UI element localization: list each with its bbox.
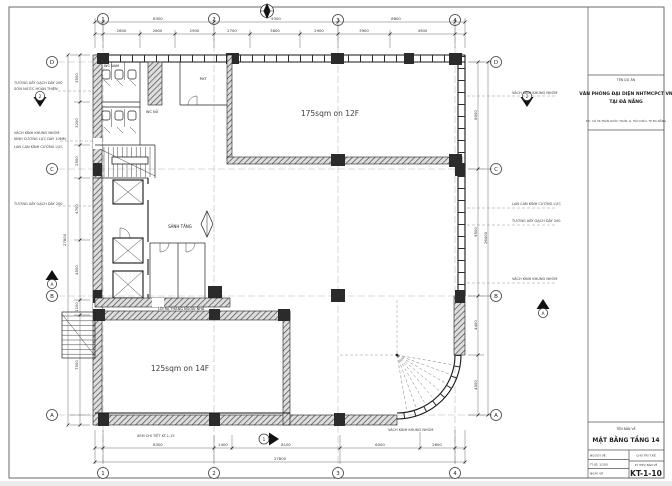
dim-text: 2900 [190, 28, 200, 33]
dim-text: 1400 [218, 442, 228, 447]
room-label-tech: P.KT [200, 77, 208, 81]
dim-text: 3500 [74, 73, 79, 83]
exterior-walls [93, 53, 465, 426]
bottom-wall [95, 415, 397, 425]
grid-bubble-A-right: A [494, 413, 498, 419]
grid-bubble-3-bottom: 3 [336, 471, 340, 477]
left-wall [93, 55, 102, 425]
drawing-number: KT-1-10 [630, 469, 662, 478]
grid-bubble-A-left: A [50, 413, 54, 419]
titleblock-row3-left: NGÀY VẼ [590, 471, 603, 476]
wc-fixtures [102, 62, 136, 133]
grid-bubble-D-left: D [50, 60, 54, 66]
project-name: VĂN PHÒNG ĐẠI DIỆN NHTMCPCT VN [579, 89, 672, 97]
dim-text: 2600 [153, 28, 163, 33]
area-label-12f: 175sqm on 12F [301, 109, 359, 118]
columns [93, 53, 465, 426]
dim-text: 4700 [74, 204, 79, 214]
note-label: TƯỜNG XÂY GẠCH DÀY 200 [13, 80, 63, 85]
dim-text: 2600 [432, 442, 442, 447]
grid-bubble-D-right: D [494, 60, 498, 66]
dim-text: 8100 [281, 442, 291, 447]
external-stair [62, 312, 95, 358]
dim-text: 4500 [473, 380, 478, 390]
dim-text: 8800 [391, 16, 401, 21]
dim-text: 9300 [271, 16, 281, 21]
dim-text: 4400 [473, 320, 478, 330]
dim-text: 26400 [483, 231, 488, 244]
grid-bubble-C-left: C [50, 167, 54, 173]
section-marker-left-top: 2 [34, 91, 47, 107]
section-marker-bottom: 1 [259, 433, 279, 446]
drawing-sheet: 1 2 3 4 1 2 3 4 D C B A D C B A 2 2 A A … [0, 0, 672, 486]
note-label: LAN CAN KÍNH CƯỜNG LỰC [512, 201, 561, 206]
lobby-level-marker [201, 211, 213, 237]
floor-plan-drawing: 1 2 3 4 1 2 3 4 D C B A D C B A 2 2 A A … [0, 0, 672, 486]
dim-text: 9500 [473, 227, 478, 237]
curved-wall-outer [397, 355, 461, 419]
stair [100, 147, 155, 177]
door-swing [120, 228, 130, 238]
right-wall-solid [454, 296, 465, 355]
grid-bubble-4-bottom: 4 [453, 471, 457, 477]
room-label-wc-nam: WC NAM [104, 64, 119, 68]
section-marker-label: 1 [263, 437, 266, 442]
note-label: VÁCH KÍNH KHUNG NHÔM [388, 427, 433, 432]
note-label: XEM CHI TIẾT KT-1-15 [137, 432, 175, 438]
note-label: KÍNH CƯỜNG LỰC DÀY 10MM [14, 136, 66, 141]
sheet-edge-shadow [0, 481, 672, 486]
section-markers: 2 2 A A 1 [34, 91, 550, 445]
dim-text: 3200 [74, 118, 79, 128]
exit-note-label: LỐI RA THANG NGOÀI NHÀ [158, 306, 205, 311]
grid-bubble-1-bottom: 1 [101, 471, 105, 477]
grid-bubble-2-bottom: 2 [212, 471, 216, 477]
titleblock-row1-right: CHỦ TRÌ T.KẾ [636, 452, 656, 458]
titleblock-row1-left: NGƯỜI VẼ [590, 453, 606, 458]
dim-text: 4900 [418, 28, 428, 33]
drawing-code-label: KÝ HIỆU BẢN VẼ [635, 462, 658, 467]
building-core [95, 62, 230, 307]
section-marker-label: 2 [39, 94, 42, 99]
grid-bubble-C-right: C [494, 167, 498, 173]
dim-text: 8000 [473, 110, 478, 120]
section-marker-label: A [51, 282, 54, 287]
dim-text: 2800 [117, 28, 127, 33]
curve-setout-fan [340, 300, 451, 409]
note-label: VÁCH KÍNH KHUNG NHÔM [512, 276, 557, 281]
grid-bubble-B-right: B [494, 294, 498, 300]
core-rooms [150, 243, 222, 300]
dim-text: 8300 [153, 16, 163, 21]
drawing-title: MẶT BẰNG TẦNG 14 [592, 435, 659, 444]
dimension-chains: 8300 9300 8800 2800 2600 2900 2700 3800 … [62, 16, 492, 464]
duct-shaft [148, 62, 162, 105]
grid-bubble-B-left: B [50, 294, 54, 300]
note-label: LAN CAN KÍNH CƯỜNG LỰC [14, 144, 63, 149]
elevator-shafts [113, 180, 143, 298]
dim-text: 3800 [270, 28, 280, 33]
area-label-14f: 125sqm on 14F [151, 364, 209, 373]
dim-text: 27800 [274, 456, 287, 461]
dim-text: 27800 [62, 233, 67, 246]
dim-text: 6000 [375, 442, 385, 447]
dim-text: 2700 [227, 28, 237, 33]
dim-text: 7500 [74, 360, 79, 370]
dim-text: 1100 [74, 302, 79, 312]
curved-wall-inner [397, 355, 455, 413]
room-label-lobby: SẢNH TẦNG [168, 224, 192, 229]
dim-text: 2900 [314, 28, 324, 33]
room-label-wc-nu: WC NỮ [146, 109, 159, 114]
section-marker-label: A [542, 311, 545, 316]
note-label: VÁCH KÍNH KHUNG NHÔM [14, 130, 59, 135]
title-block: TÊN DỰ ÁN VĂN PHÒNG ĐẠI DIỆN NHTMCPCT VN… [579, 7, 672, 478]
drawing-label: TÊN BẢN VẼ [615, 426, 635, 431]
project-name: TẠI ĐÀ NẴNG [609, 97, 643, 105]
section-marker-left-mid: A [46, 270, 59, 289]
note-label: TƯỜNG XÂY GẠCH DÀY 200 [13, 201, 63, 206]
note-label: SƠN NƯỚC HOÀN THIỆN [14, 86, 58, 91]
dim-text: 3900 [359, 28, 369, 33]
titleblock-row2-left: TỈ LỆ: 1/100 [589, 462, 608, 467]
sheet-border [9, 7, 664, 478]
project-address: ĐC: SỐ 36 TRẦN QUỐC TOẢN, Q. HẢI CHÂU, T… [586, 118, 666, 123]
dim-text: 4500 [74, 265, 79, 275]
note-label: VÁCH KÍNH KHUNG NHÔM [512, 90, 557, 95]
note-label: TƯỜNG XÂY GẠCH DÀY 200 [511, 218, 561, 223]
project-label: TÊN DỰ ÁN [616, 77, 636, 82]
section-marker-right-bottom: A [537, 299, 550, 318]
grid-bubbles: 1 2 3 4 1 2 3 4 D C B A D C B A [47, 14, 502, 479]
dim-text: 2500 [74, 156, 79, 166]
dim-text: 8300 [153, 442, 163, 447]
door-swing [188, 96, 197, 105]
